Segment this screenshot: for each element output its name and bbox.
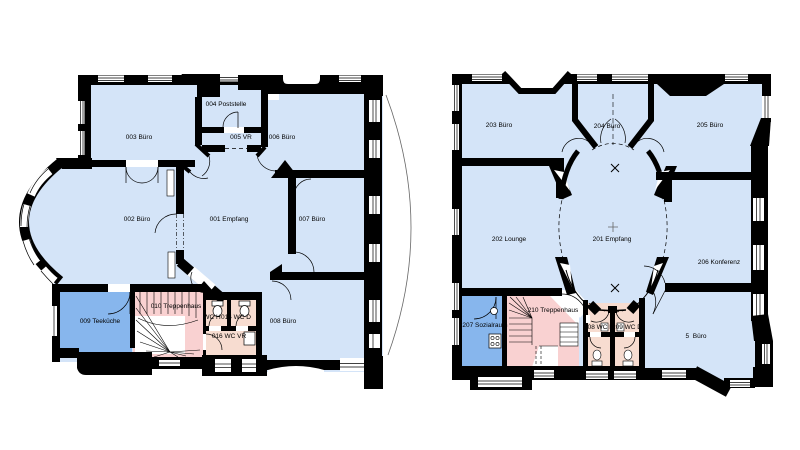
svg-text:004 Poststelle: 004 Poststelle — [206, 101, 247, 108]
svg-text:205 Büro: 205 Büro — [697, 122, 724, 129]
svg-text:006 Büro: 006 Büro — [269, 134, 296, 141]
svg-text:202 Lounge: 202 Lounge — [492, 236, 527, 243]
svg-text:016 WC VR: 016 WC VR — [212, 333, 247, 340]
svg-text:WC H: WC H — [203, 314, 221, 321]
svg-text:201 Empfang: 201 Empfang — [593, 236, 632, 243]
svg-text:007 Büro: 007 Büro — [299, 216, 326, 223]
svg-text:208 WC H: 208 WC H — [584, 324, 614, 331]
svg-text:001 Empfang: 001 Empfang — [210, 216, 249, 223]
svg-text:008 Büro: 008 Büro — [270, 318, 297, 325]
svg-text:5 Büro: 5 Büro — [686, 333, 707, 340]
svg-text:010 Treppenhaus: 010 Treppenhaus — [151, 303, 202, 310]
svg-text:209 WC D: 209 WC D — [612, 324, 642, 331]
svg-text:005 VR: 005 VR — [230, 134, 252, 141]
svg-text:014 WC D: 014 WC D — [221, 314, 251, 321]
svg-text:204 Büro: 204 Büro — [594, 123, 621, 130]
svg-text:003 Büro: 003 Büro — [126, 134, 153, 141]
svg-text:210 Treppenhaus: 210 Treppenhaus — [528, 307, 579, 314]
svg-text:009 Teeküche: 009 Teeküche — [80, 318, 121, 325]
svg-text:203 Büro: 203 Büro — [486, 122, 513, 129]
svg-text:207 Sozialraum: 207 Sozialraum — [462, 322, 507, 329]
svg-text:002 Büro: 002 Büro — [124, 216, 151, 223]
svg-text:206 Konferenz: 206 Konferenz — [698, 259, 740, 266]
